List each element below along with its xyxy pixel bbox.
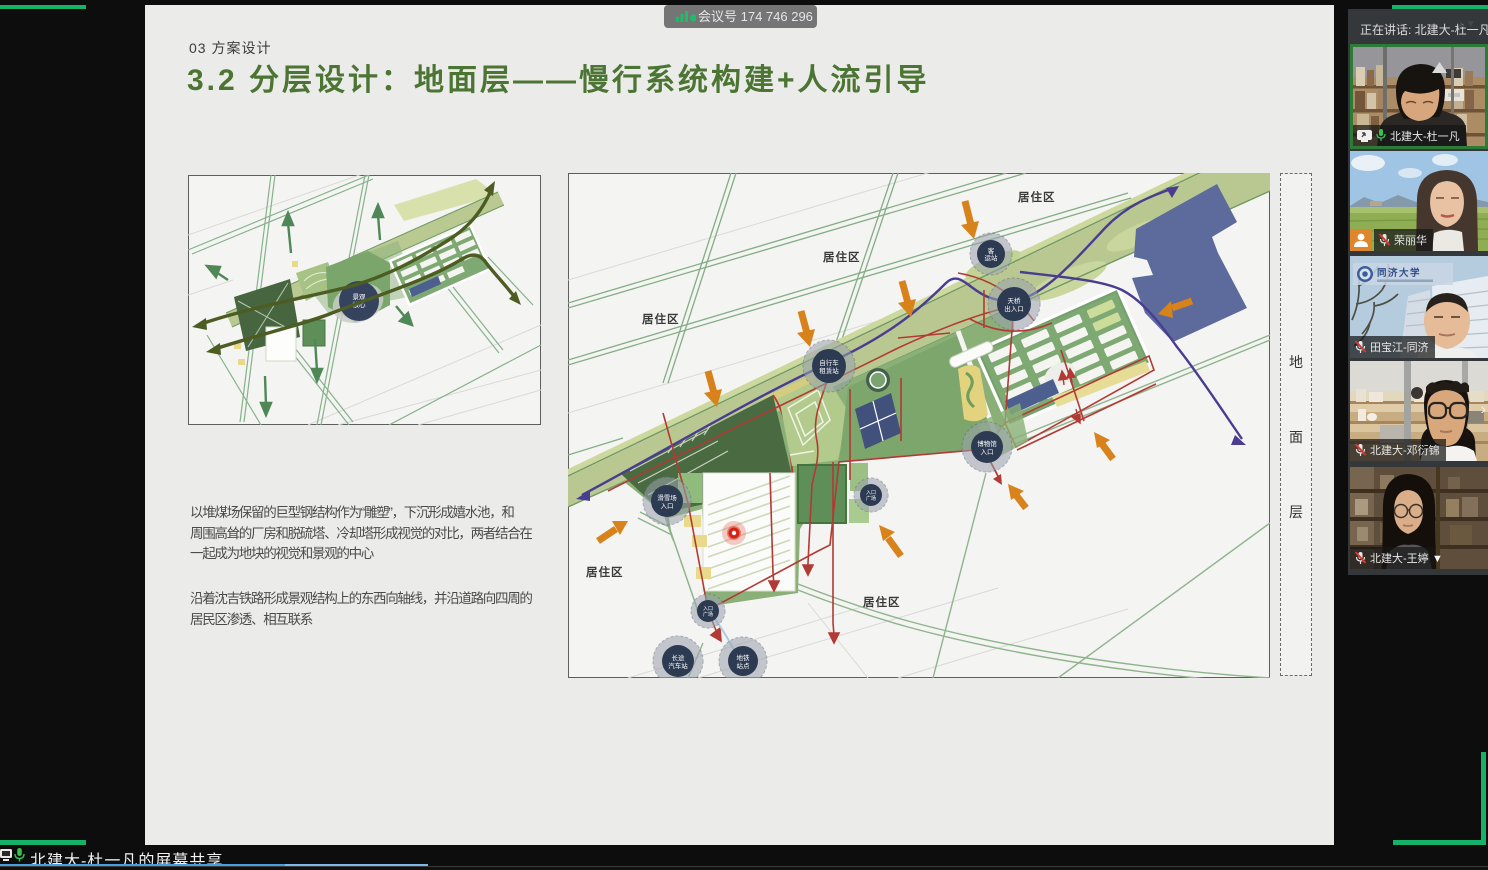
- svg-text:出入口: 出入口: [1004, 304, 1024, 313]
- svg-text:入口: 入口: [661, 502, 674, 510]
- svg-text:汽车站: 汽车站: [668, 661, 688, 670]
- svg-text:广场: 广场: [703, 611, 713, 618]
- svg-text:站点: 站点: [737, 661, 751, 670]
- svg-text:同济大学: 同济大学: [1377, 267, 1421, 279]
- svg-text:居住区: 居住区: [586, 565, 624, 579]
- svg-text:地铁: 地铁: [737, 653, 751, 662]
- svg-text:博物馆: 博物馆: [977, 439, 997, 448]
- svg-text:自行车: 自行车: [819, 358, 839, 367]
- svg-text:居住区: 居住区: [823, 250, 861, 264]
- svg-text:广场: 广场: [866, 495, 876, 502]
- svg-text:运站: 运站: [985, 253, 999, 262]
- svg-text:居住区: 居住区: [642, 312, 680, 326]
- svg-text:租赁站: 租赁站: [819, 366, 839, 375]
- svg-text:滑雪场: 滑雪场: [657, 493, 677, 502]
- svg-text:长途: 长途: [672, 653, 686, 662]
- svg-text:居住区: 居住区: [863, 595, 901, 609]
- svg-text:居住区: 居住区: [1018, 190, 1056, 204]
- svg-text:客: 客: [988, 246, 995, 255]
- svg-text:入口: 入口: [981, 448, 994, 456]
- svg-text:天桥: 天桥: [1008, 296, 1022, 305]
